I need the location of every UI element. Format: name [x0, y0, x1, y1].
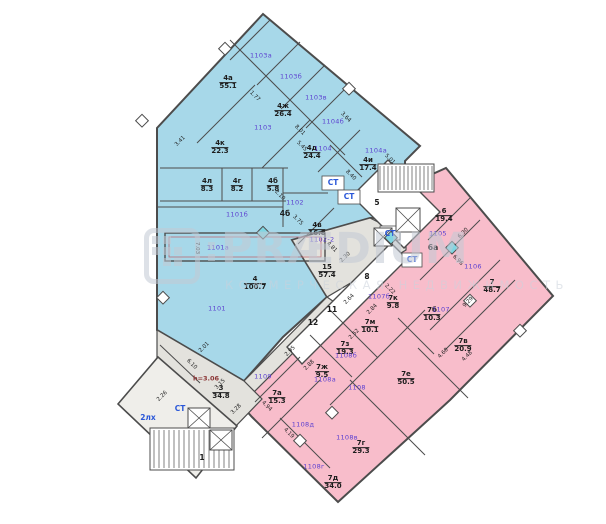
room-area-label: 4а55.1: [219, 75, 236, 91]
unit-number-label: 1104б: [322, 119, 344, 126]
dimension-label: 6.10: [185, 359, 198, 372]
room-number-label: 1: [199, 454, 204, 462]
dimension-label: 4.60: [438, 348, 451, 361]
unit-number-label: 1103а: [250, 53, 272, 60]
unit-number-label: 1101б: [226, 212, 248, 219]
dimension-label: 1.77: [248, 91, 261, 104]
room-number-label: 12: [308, 319, 318, 327]
room-number-label: 5: [374, 199, 379, 207]
unit-number-label: 1104: [314, 146, 332, 153]
unit-number-label: 1108в: [336, 435, 358, 442]
service-label: СТ: [328, 179, 339, 187]
unit-number-label: 1102: [286, 200, 304, 207]
service-label: СТ: [175, 405, 186, 413]
dimension-label: 6.30: [458, 228, 471, 241]
unit-number-label: 1108г: [303, 464, 324, 471]
dimension-label: 2.52: [349, 329, 362, 342]
dimension-label: 4.81: [325, 242, 338, 255]
dimension-label: 5.01: [383, 154, 396, 167]
room-number-label: 8: [364, 273, 369, 281]
service-label: 2лх: [140, 414, 156, 422]
room-area-label: 4и17.4: [359, 157, 376, 173]
unit-number-label: 1108б: [335, 353, 357, 360]
dimension-label: 2.26: [157, 391, 170, 404]
room-number-label: 4б: [280, 210, 290, 218]
unit-number-label: 1108а: [314, 377, 336, 384]
dimension-label: 2.30: [340, 252, 353, 265]
dimension-label: 8.40: [344, 170, 357, 183]
service-label: СТ: [344, 193, 355, 201]
room-area-label: 748.7: [483, 279, 500, 295]
room-number-label: 6а: [428, 244, 438, 252]
unit-number-label: 1107: [432, 307, 450, 314]
dimension-label: 2.64: [344, 294, 357, 307]
room-area-label: 4к22.3: [211, 140, 228, 156]
room-area-label: 7а15.3: [268, 390, 285, 406]
unit-number-label: 1107б: [368, 294, 390, 301]
room-area-label: 7д34.0: [324, 475, 341, 491]
dimension-label: 2.01: [199, 342, 212, 355]
dimension-label: 3.28: [231, 404, 244, 417]
unit-number-label: 1108: [348, 385, 366, 392]
room-area-label: 1557.4: [318, 264, 335, 280]
plan-labels-layer: 4а55.14ж26.44к22.34л8.34г8.24б5.84д24.44…: [0, 0, 606, 524]
room-area-label: 4л8.3: [201, 178, 213, 194]
dimension-label: 6.96: [451, 255, 464, 268]
unit-number-label: 1104а: [365, 148, 387, 155]
unit-number-label: 1109: [254, 374, 272, 381]
room-area-label: 4100.7: [244, 276, 266, 292]
unit-number-label: 1108д: [292, 422, 315, 429]
room-area-label: 7е50.5: [397, 371, 414, 387]
room-area-label: 7м10.1: [361, 319, 378, 335]
ceiling-height-note: h=3.06: [193, 376, 219, 383]
dimension-label: 3.75: [291, 215, 304, 228]
unit-number-label: 1106: [464, 264, 482, 271]
room-area-label: 4г8.2: [231, 178, 243, 194]
dimension-label: 2.84: [367, 304, 380, 317]
floor-plan-page: 4а55.14ж26.44к22.34л8.34г8.24б5.84д24.44…: [0, 0, 606, 524]
room-area-label: 7г29.3: [352, 440, 369, 456]
dimension-label: 9.29: [463, 297, 476, 310]
dimension-label: 3.41: [175, 136, 188, 149]
dimension-label: 4.19: [282, 428, 295, 441]
room-area-label: 619.4: [435, 208, 452, 224]
service-label: СТ: [385, 230, 396, 238]
unit-number-label: 1105: [429, 231, 447, 238]
unit-number-label: 1103в: [305, 95, 327, 102]
room-number-label: 11: [327, 306, 337, 314]
service-label: СТ: [407, 256, 418, 264]
dimension-label: 8.01: [293, 125, 306, 138]
unit-number-label: 1101а: [207, 245, 229, 252]
unit-number-label: 1101: [208, 306, 226, 313]
unit-number-label: 1103: [254, 125, 272, 132]
dimension-label: 2.10: [273, 190, 286, 203]
room-area-label: 4ж26.4: [274, 103, 291, 119]
unit-number-label: 1103б: [280, 74, 302, 81]
dimension-label: 2.95: [285, 346, 298, 359]
dimension-label: 7.03: [193, 242, 199, 254]
